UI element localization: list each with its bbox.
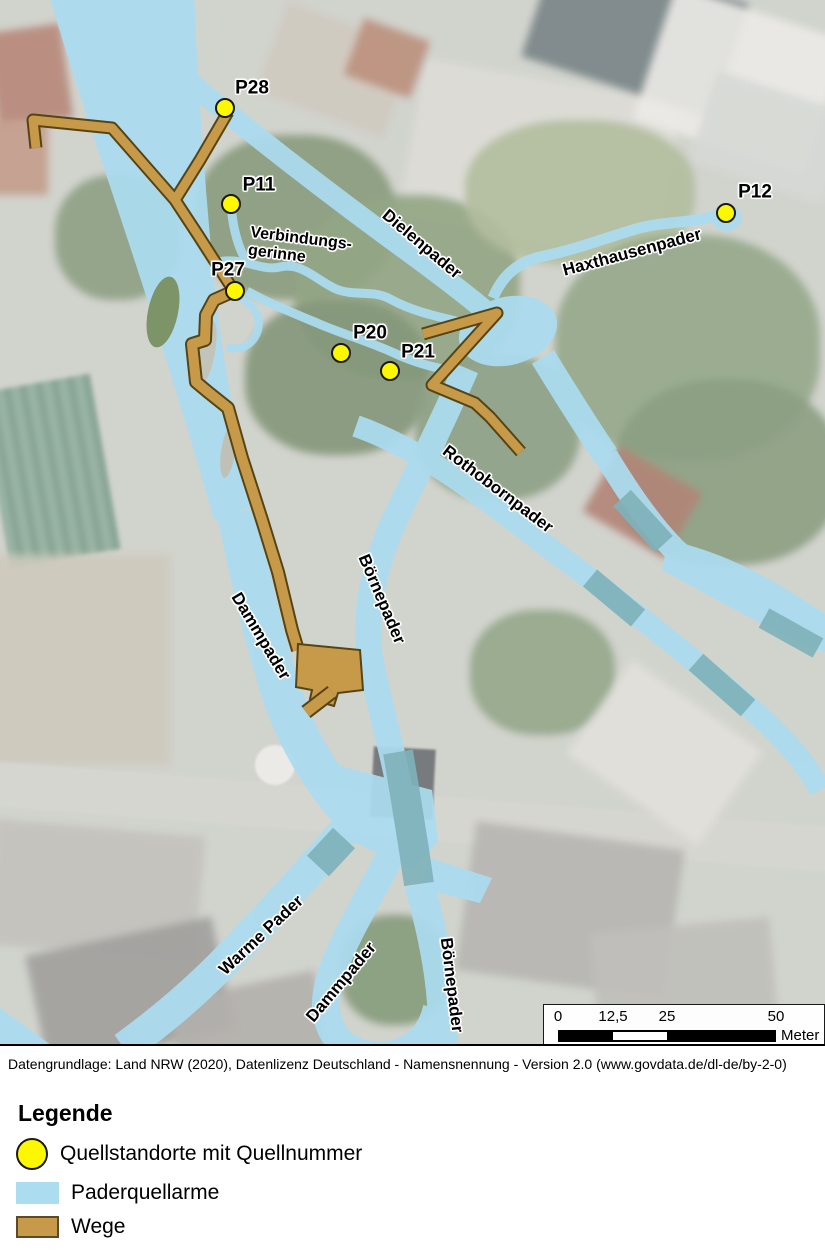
spring-marker-p20 [331, 343, 351, 363]
water-verbindungsgerinne-a [231, 206, 247, 262]
spring-marker-p27 [225, 281, 245, 301]
spring-label-p28: P28 [235, 77, 269, 98]
legend-title: Legende [18, 1100, 113, 1127]
legend-swatch-rect-blue [16, 1182, 59, 1204]
spring-marker-p11 [221, 194, 241, 214]
water-verbindungsgerinne-d [227, 297, 259, 348]
spring-label-p12: P12 [738, 181, 772, 202]
spring-label-p11: P11 [243, 174, 276, 195]
report-page: P28P11P27P20P21P12 Verbindungs-gerinneDi… [0, 0, 825, 1254]
culvert-strasse-links [318, 838, 344, 866]
spring-marker-p21 [380, 361, 400, 381]
legend-item-label: Paderquellarme [71, 1181, 219, 1205]
legend-swatch-rect-brown [16, 1216, 59, 1238]
attribution-text: Datengrundlage: Land NRW (2020), Datenli… [8, 1056, 787, 1072]
legend-panel: Datengrundlage: Land NRW (2020), Datenli… [0, 1048, 825, 1254]
scalebar-tick-12-5: 12,5 [598, 1008, 627, 1025]
scalebar-tick-50: 50 [768, 1008, 785, 1025]
scalebar-bar [558, 1030, 776, 1042]
legend-item-rect-blue: Paderquellarme [16, 1181, 219, 1205]
legend-item-label: Wege [71, 1215, 125, 1239]
legend-swatch-circle-yellow [16, 1138, 48, 1170]
spring-label-p27: P27 [211, 259, 245, 280]
scalebar: 012,52550 Meter [543, 1004, 825, 1046]
spring-marker-p28 [215, 98, 235, 118]
scalebar-unit: Meter [781, 1027, 819, 1044]
water-teich-abfluss [543, 357, 606, 456]
spring-label-p21: P21 [401, 341, 435, 362]
spring-label-p20: P20 [353, 322, 387, 343]
scalebar-tick-25: 25 [659, 1008, 676, 1025]
culvert-bruecke [398, 752, 419, 884]
legend-item-circle-yellow: Quellstandorte mit Quellnummer [16, 1138, 362, 1170]
legend-item-label: Quellstandorte mit Quellnummer [60, 1142, 362, 1166]
culvert-rothoborn-1 [590, 578, 638, 618]
spring-marker-p12 [716, 203, 736, 223]
water-and-paths-layer [0, 0, 825, 1046]
water-ecke-links [0, 1008, 55, 1046]
scalebar-bar-segment [613, 1032, 667, 1040]
culvert-ost-1 [622, 498, 664, 544]
scalebar-tick-0: 0 [554, 1008, 562, 1025]
map-container: P28P11P27P20P21P12 Verbindungs-gerinneDi… [0, 0, 825, 1046]
legend-item-rect-brown: Wege [16, 1215, 125, 1239]
